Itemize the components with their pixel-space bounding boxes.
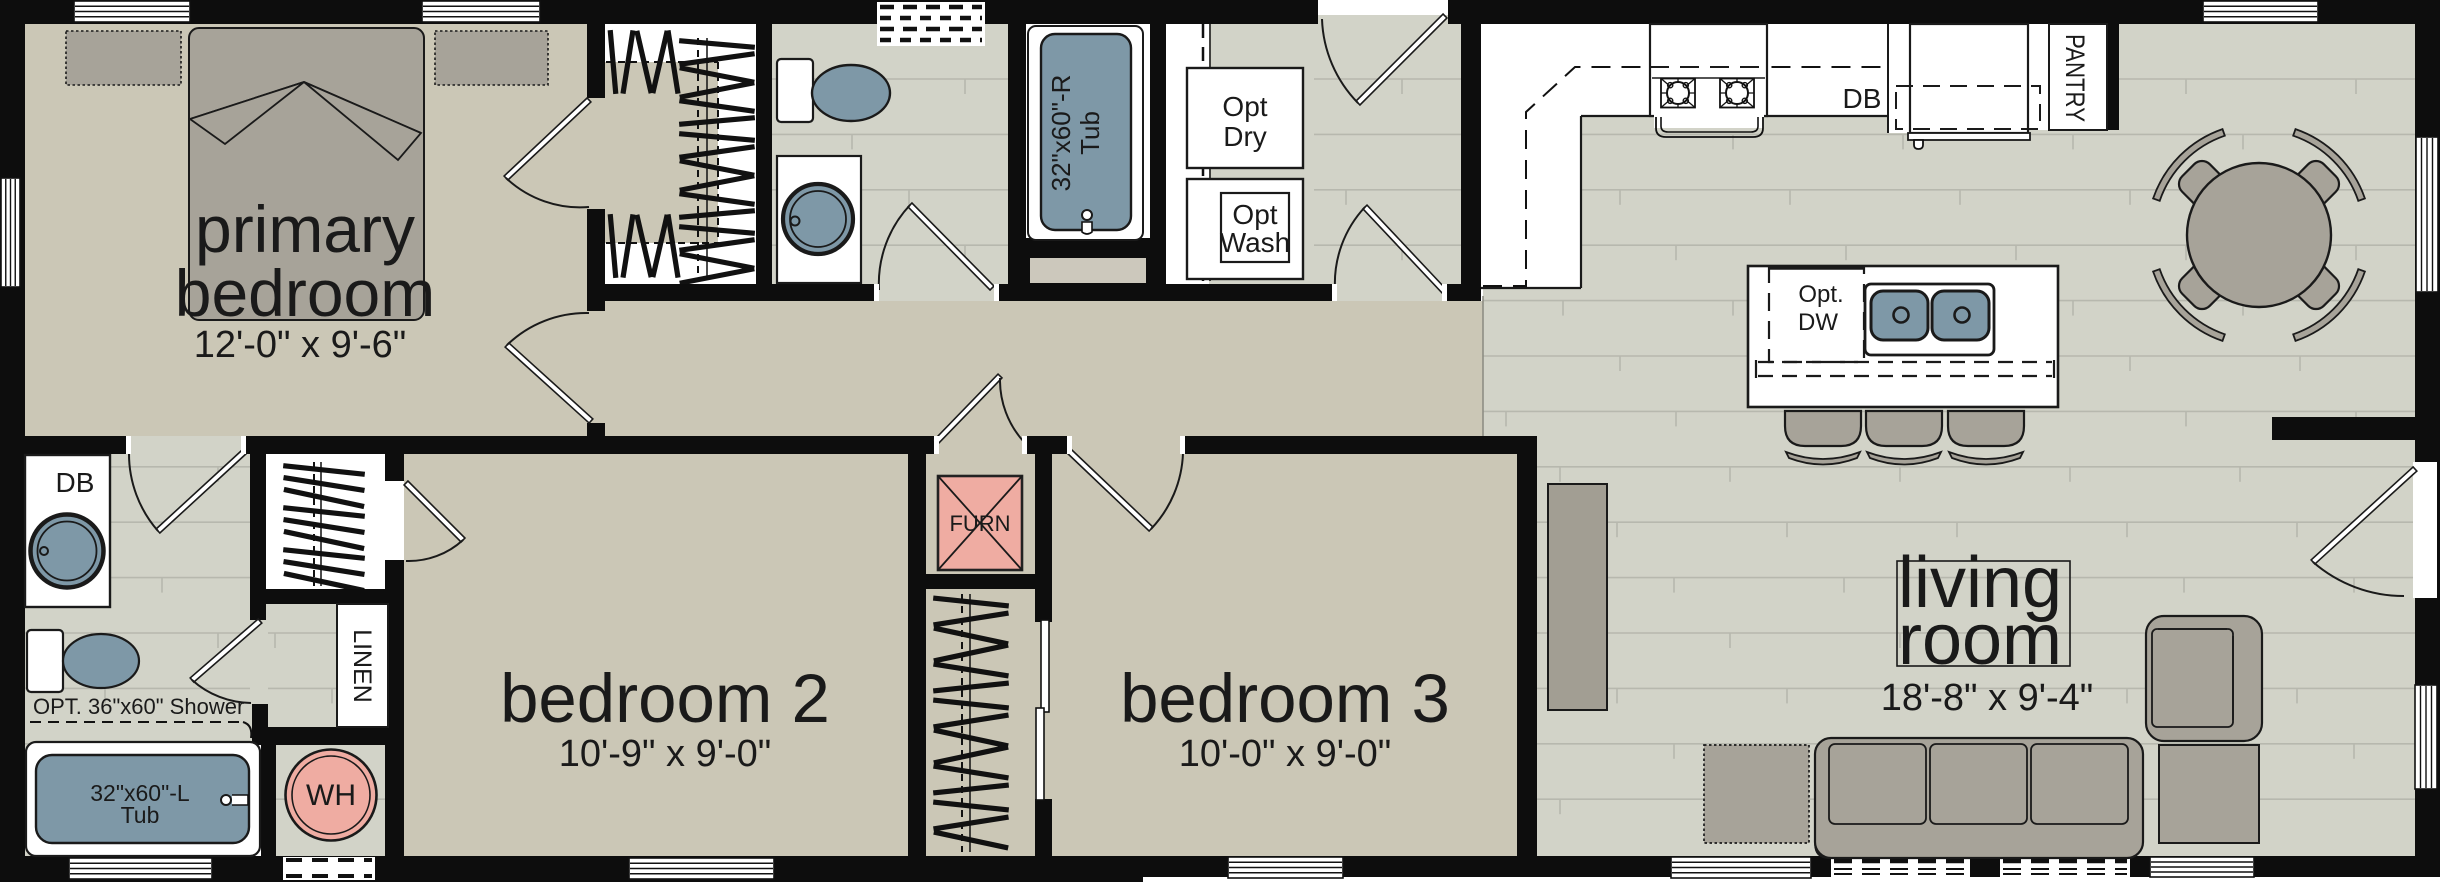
svg-text:32"x60"-R: 32"x60"-R xyxy=(1046,75,1076,192)
svg-text:FURN: FURN xyxy=(949,511,1010,536)
svg-text:10'-0" x 9'-0": 10'-0" x 9'-0" xyxy=(1179,733,1392,775)
svg-text:OPT. 36"x60" Shower: OPT. 36"x60" Shower xyxy=(33,694,244,719)
svg-text:18'-8" x 9'-4": 18'-8" x 9'-4" xyxy=(1881,677,2094,719)
svg-text:LINEN: LINEN xyxy=(348,629,376,703)
svg-text:bedroom 2: bedroom 2 xyxy=(500,660,830,737)
svg-text:DB: DB xyxy=(56,467,95,498)
svg-text:primary: primary xyxy=(195,192,415,266)
svg-text:10'-9" x 9'-0": 10'-9" x 9'-0" xyxy=(559,733,772,775)
svg-text:Tub: Tub xyxy=(1075,111,1105,155)
svg-text:Opt.: Opt. xyxy=(1798,281,1843,308)
svg-text:DB: DB xyxy=(1843,83,1882,114)
svg-text:Opt: Opt xyxy=(1232,199,1277,230)
svg-text:PANTRY: PANTRY xyxy=(2060,34,2090,122)
svg-text:Wash: Wash xyxy=(1220,227,1291,258)
svg-text:bedroom 3: bedroom 3 xyxy=(1120,660,1450,737)
svg-text:12'-0" x 9'-6": 12'-0" x 9'-6" xyxy=(194,324,407,366)
svg-text:Dry: Dry xyxy=(1223,121,1267,152)
svg-text:room: room xyxy=(1898,600,2062,680)
svg-text:bedroom: bedroom xyxy=(175,256,436,330)
svg-text:Opt: Opt xyxy=(1222,91,1267,122)
svg-text:Tub: Tub xyxy=(121,802,160,828)
svg-text:DW: DW xyxy=(1798,309,1838,336)
svg-text:WH: WH xyxy=(306,779,356,812)
